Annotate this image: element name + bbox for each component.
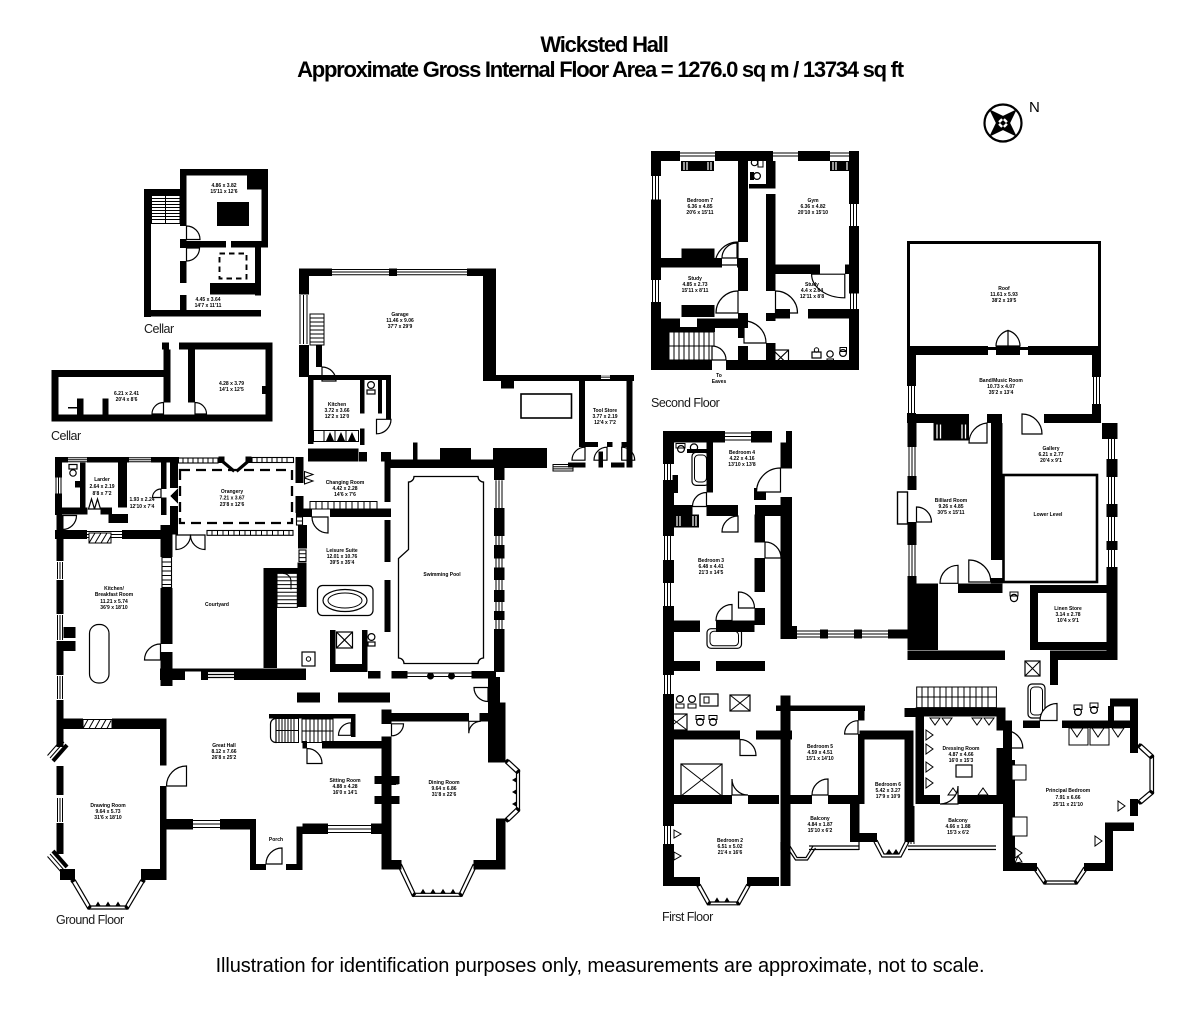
svg-text:7.21 x 3.67: 7.21 x 3.67: [219, 496, 244, 502]
svg-text:Cellar: Cellar: [144, 322, 174, 336]
svg-text:Eaves: Eaves: [712, 379, 727, 385]
svg-text:7.91 x 6.66: 7.91 x 6.66: [1055, 795, 1080, 801]
svg-text:38'2 x 19'5: 38'2 x 19'5: [992, 298, 1017, 304]
svg-text:15'3 x 6'2: 15'3 x 6'2: [947, 830, 969, 836]
svg-text:Cellar: Cellar: [51, 429, 81, 443]
svg-text:36'9 x 18'10: 36'9 x 18'10: [100, 605, 128, 611]
svg-text:16'0 x 14'1: 16'0 x 14'1: [333, 790, 358, 796]
svg-text:N: N: [1029, 99, 1040, 116]
svg-text:Illustration for identificatio: Illustration for identification purposes…: [216, 955, 985, 977]
svg-text:12'11 x 8'8: 12'11 x 8'8: [800, 294, 825, 300]
svg-text:12'4 x 7'2: 12'4 x 7'2: [594, 420, 616, 426]
svg-text:Breakfast Room: Breakfast Room: [95, 592, 134, 598]
svg-text:15'11 x 8'11: 15'11 x 8'11: [682, 288, 709, 294]
svg-text:23'8 x 12'6: 23'8 x 12'6: [220, 502, 245, 508]
svg-text:14'7 x 11'11: 14'7 x 11'11: [195, 303, 222, 309]
svg-text:Wicksted Hall: Wicksted Hall: [540, 32, 667, 57]
svg-text:Lower Level: Lower Level: [1034, 512, 1064, 518]
svg-text:20'10 x 15'10: 20'10 x 15'10: [798, 210, 828, 216]
svg-text:21'3 x 14'5: 21'3 x 14'5: [699, 570, 724, 576]
svg-text:Ground Floor: Ground Floor: [56, 913, 124, 927]
svg-text:Principal Bedroom: Principal Bedroom: [1046, 788, 1091, 794]
svg-text:1.93 x 2.24: 1.93 x 2.24: [129, 497, 154, 503]
svg-text:20'4 x 8'6: 20'4 x 8'6: [116, 397, 138, 403]
svg-text:20'6 x 15'11: 20'6 x 15'11: [686, 210, 713, 216]
svg-text:Approximate Gross Internal Flo: Approximate Gross Internal Floor Area = …: [297, 57, 905, 82]
svg-text:17'9 x 10'9: 17'9 x 10'9: [876, 794, 901, 800]
svg-text:Larder: Larder: [94, 477, 110, 483]
svg-text:Courtyard: Courtyard: [205, 602, 229, 608]
svg-text:First Floor: First Floor: [662, 910, 713, 924]
svg-text:39'5 x 35'4: 39'5 x 35'4: [330, 560, 355, 566]
svg-text:Orangery: Orangery: [221, 489, 243, 495]
svg-text:14'6 x 7'6: 14'6 x 7'6: [334, 492, 356, 498]
svg-text:26'8 x 25'2: 26'8 x 25'2: [212, 755, 237, 761]
svg-text:37'7 x 29'9: 37'7 x 29'9: [388, 324, 413, 330]
svg-text:35'2 x 13'4: 35'2 x 13'4: [989, 390, 1014, 396]
svg-text:14'1 x 12'5: 14'1 x 12'5: [219, 387, 244, 393]
svg-text:15'11 x 12'6: 15'11 x 12'6: [210, 189, 237, 195]
svg-text:2.64 x 2.19: 2.64 x 2.19: [89, 484, 114, 490]
svg-text:31'8 x 22'6: 31'8 x 22'6: [432, 792, 457, 798]
svg-text:Second Floor: Second Floor: [651, 396, 720, 410]
svg-text:30'5 x 15'11: 30'5 x 15'11: [937, 510, 964, 516]
svg-text:16'0 x 15'3: 16'0 x 15'3: [949, 758, 974, 764]
svg-text:15'1 x 14'10: 15'1 x 14'10: [806, 756, 834, 762]
svg-text:12'2 x 12'0: 12'2 x 12'0: [325, 414, 350, 420]
svg-text:20'4 x 9'1: 20'4 x 9'1: [1040, 458, 1062, 464]
svg-text:8'8 x 7'2: 8'8 x 7'2: [92, 491, 111, 497]
svg-text:10'4 x 9'1: 10'4 x 9'1: [1057, 618, 1079, 624]
svg-text:12'10 x 7'4: 12'10 x 7'4: [130, 504, 155, 510]
svg-text:Swimming Pool: Swimming Pool: [423, 572, 461, 578]
svg-text:Porch: Porch: [269, 837, 283, 843]
svg-text:31'6 x 18'10: 31'6 x 18'10: [94, 815, 122, 821]
svg-text:25'11 x 21'10: 25'11 x 21'10: [1053, 802, 1083, 808]
svg-text:15'10 x 6'2: 15'10 x 6'2: [808, 828, 833, 834]
svg-text:21'4 x 16'6: 21'4 x 16'6: [718, 850, 743, 856]
svg-text:13'10 x 13'8: 13'10 x 13'8: [728, 462, 756, 468]
